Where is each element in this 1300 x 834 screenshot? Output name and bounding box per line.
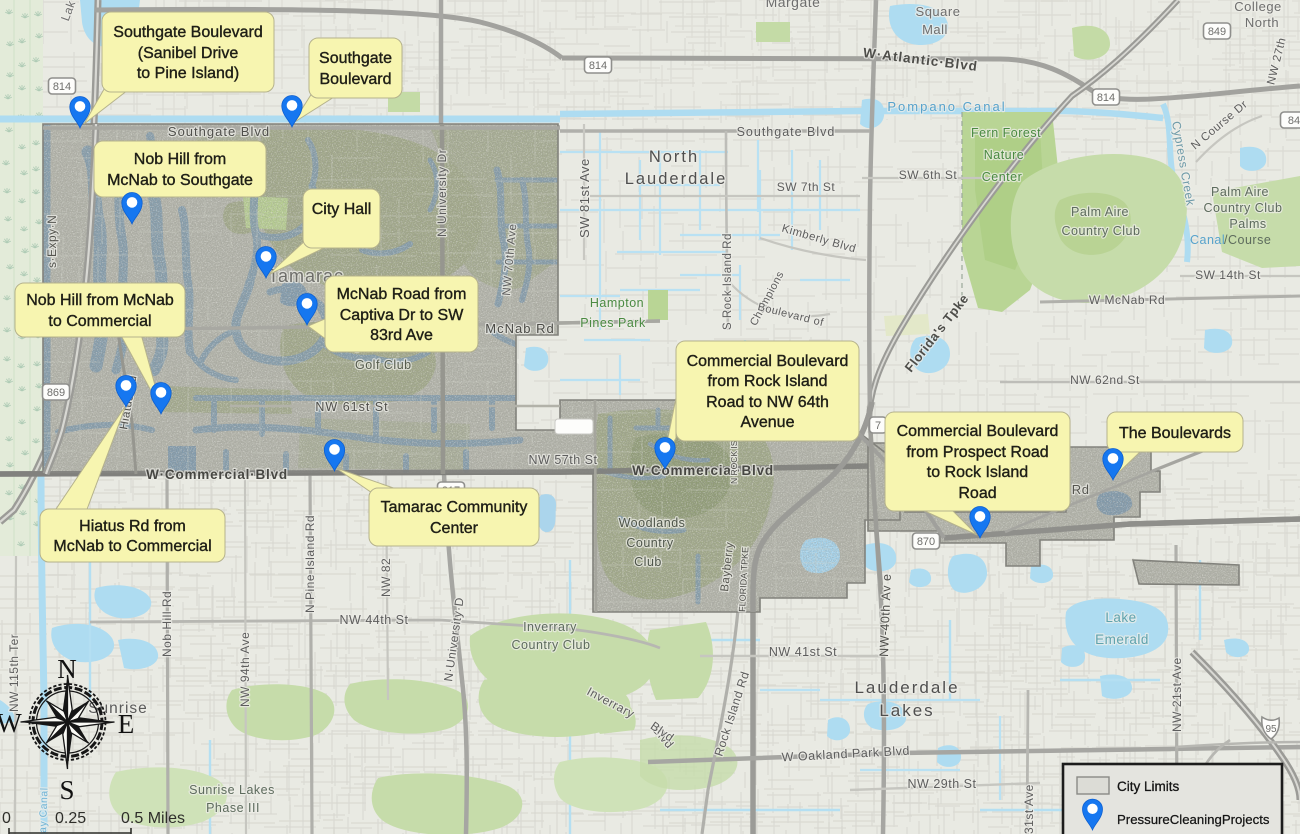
svg-text:McNab Road from: McNab Road from [337, 286, 467, 303]
svg-text:Phase III: Phase III [206, 801, 260, 815]
svg-text:Commercial Boulevard: Commercial Boulevard [687, 353, 849, 370]
svg-text:ay Canal: ay Canal [37, 787, 51, 833]
svg-text:W McNab Rd: W McNab Rd [1089, 293, 1165, 307]
svg-text:Club: Club [634, 555, 662, 569]
svg-text:City Limits: City Limits [1117, 779, 1180, 794]
svg-text:College: College [1234, 0, 1282, 14]
svg-text:870: 870 [917, 536, 935, 548]
svg-text:to Rock Island: to Rock Island [927, 464, 1028, 481]
svg-text:Boulevard: Boulevard [319, 71, 391, 88]
svg-text:Nob Hill from McNab: Nob Hill from McNab [26, 292, 174, 309]
svg-text:NW-40th Av e: NW-40th Av e [877, 573, 894, 657]
svg-text:S Rock Island Rd: S Rock Island Rd [722, 233, 734, 330]
svg-text:North: North [649, 148, 699, 166]
svg-text:Emerald: Emerald [1095, 632, 1149, 647]
svg-text:SW 14th St: SW 14th St [1195, 268, 1261, 282]
svg-text:Woodlands: Woodlands [619, 516, 686, 530]
svg-text:SW 7th St: SW 7th St [777, 180, 836, 194]
svg-text:NW 115th Ter: NW 115th Ter [7, 634, 21, 712]
svg-text:Avenue: Avenue [741, 414, 795, 431]
svg-text:Country Club: Country Club [1204, 201, 1283, 215]
svg-text:Country Club: Country Club [1062, 224, 1141, 238]
svg-text:83rd Ave: 83rd Ave [370, 327, 433, 344]
svg-text:to Commercial: to Commercial [48, 313, 151, 330]
svg-text:7: 7 [875, 420, 881, 432]
svg-text:814: 814 [53, 81, 71, 93]
svg-text:0.25: 0.25 [55, 810, 86, 827]
svg-text:NW 94th Ave: NW 94th Ave [238, 632, 252, 707]
svg-text:Mall: Mall [922, 22, 948, 37]
svg-text:Palm Aire: Palm Aire [1071, 205, 1129, 219]
svg-text:N University Dr: N University Dr [435, 149, 449, 237]
svg-text:W: W [0, 708, 22, 738]
svg-text:/Course: /Course [1224, 233, 1271, 247]
svg-text:814: 814 [589, 60, 607, 72]
svg-text:Center: Center [982, 170, 1023, 184]
svg-text:Nob Hill from: Nob Hill from [134, 151, 226, 168]
svg-text:W·Commercial·Blvd: W·Commercial·Blvd [632, 463, 774, 478]
svg-text:McNab to Southgate: McNab to Southgate [107, 172, 253, 189]
svg-text:Golf Club: Golf Club [355, 358, 412, 372]
svg-text:The Boulevards: The Boulevards [1119, 425, 1231, 442]
svg-text:Hiatus Rd from: Hiatus Rd from [79, 518, 186, 535]
svg-text:N: N [57, 654, 77, 684]
svg-text:PressureCleaningProjects: PressureCleaningProjects [1117, 812, 1270, 827]
svg-text:McNab Rd: McNab Rd [485, 321, 554, 336]
svg-text:SW 6th St: SW 6th St [899, 168, 958, 182]
svg-text:Nob Hill Rd: Nob Hill Rd [160, 591, 174, 657]
svg-text:Lauderdale: Lauderdale [625, 170, 728, 188]
svg-text:NW 61st St: NW 61st St [315, 400, 388, 414]
svg-text:0.5 Miles: 0.5 Miles [121, 810, 185, 827]
svg-text:Margate: Margate [766, 0, 821, 10]
svg-text:Southgate: Southgate [319, 50, 392, 67]
svg-text:Southgate Blvd: Southgate Blvd [168, 124, 270, 139]
svg-text:Hampton: Hampton [590, 296, 644, 310]
svg-text:NW 57th St: NW 57th St [529, 453, 598, 467]
svg-text:Square: Square [916, 4, 961, 19]
svg-text:Captiva Dr to SW: Captiva Dr to SW [340, 307, 464, 324]
svg-text:84: 84 [1288, 115, 1300, 127]
svg-text:S: S [59, 775, 74, 805]
svg-text:Commercial Boulevard: Commercial Boulevard [897, 423, 1059, 440]
svg-text:NW 82: NW 82 [379, 558, 393, 597]
svg-text:SW 81st Ave: SW 81st Ave [577, 158, 592, 238]
svg-text:Country: Country [626, 536, 674, 550]
svg-text:E: E [118, 709, 135, 739]
svg-text:NW 41st St: NW 41st St [769, 645, 837, 659]
svg-text:Country Club: Country Club [512, 638, 591, 652]
svg-text:NW 29th St: NW 29th St [908, 777, 977, 791]
svg-text:Palms: Palms [1229, 217, 1266, 231]
svg-text:McNab to Commercial: McNab to Commercial [53, 538, 211, 555]
svg-text:Fern Forest: Fern Forest [971, 126, 1041, 140]
svg-text:Inverrary: Inverrary [523, 620, 577, 634]
svg-text:Road to NW 64th: Road to NW 64th [706, 394, 829, 411]
svg-text:Palm Aire: Palm Aire [1211, 185, 1269, 199]
svg-text:North: North [1245, 15, 1279, 30]
svg-text:N Pine Island Rd: N Pine Island Rd [303, 515, 317, 613]
svg-text:from Prospect Road: from Prospect Road [906, 444, 1048, 461]
svg-text:City Hall: City Hall [312, 201, 372, 218]
svg-text:s·Expy·N: s·Expy·N [45, 215, 59, 268]
svg-text:NW 44th St: NW 44th St [340, 613, 409, 627]
svg-text:869: 869 [47, 387, 65, 399]
svg-text:Center: Center [430, 520, 479, 537]
svg-text:0: 0 [2, 810, 11, 827]
svg-text:to Pine Island): to Pine Island) [137, 65, 239, 82]
svg-text:Southgate Blvd: Southgate Blvd [737, 125, 836, 139]
svg-text:NW 62nd St: NW 62nd St [1070, 373, 1140, 387]
svg-text:NW 21st Ave: NW 21st Ave [1170, 657, 1184, 732]
svg-text:Lauderdale: Lauderdale [854, 678, 959, 697]
svg-text:849: 849 [1208, 26, 1226, 38]
svg-text:Southgate Boulevard: Southgate Boulevard [113, 24, 262, 41]
svg-text:Lake: Lake [1105, 610, 1136, 625]
svg-text:W·Commercial·Blvd: W·Commercial·Blvd [146, 467, 288, 482]
svg-text:814: 814 [1097, 92, 1115, 104]
svg-text:(Sanibel Drive: (Sanibel Drive [138, 45, 239, 62]
svg-text:from Rock Island: from Rock Island [707, 373, 827, 390]
svg-text:Road: Road [958, 485, 996, 502]
svg-text:Tamarac Community: Tamarac Community [381, 499, 528, 516]
svg-text:95: 95 [1265, 724, 1277, 735]
svg-text:Canal: Canal [1190, 233, 1225, 247]
svg-text:Lakes: Lakes [879, 701, 934, 720]
svg-text:31st Ave: 31st Ave [1022, 784, 1036, 834]
svg-text:Sunrise Lakes: Sunrise Lakes [189, 783, 275, 797]
svg-text:Pines Park: Pines Park [580, 316, 646, 330]
svg-text:Pompano Canal: Pompano Canal [887, 99, 1006, 114]
svg-text:Nature: Nature [984, 148, 1025, 162]
